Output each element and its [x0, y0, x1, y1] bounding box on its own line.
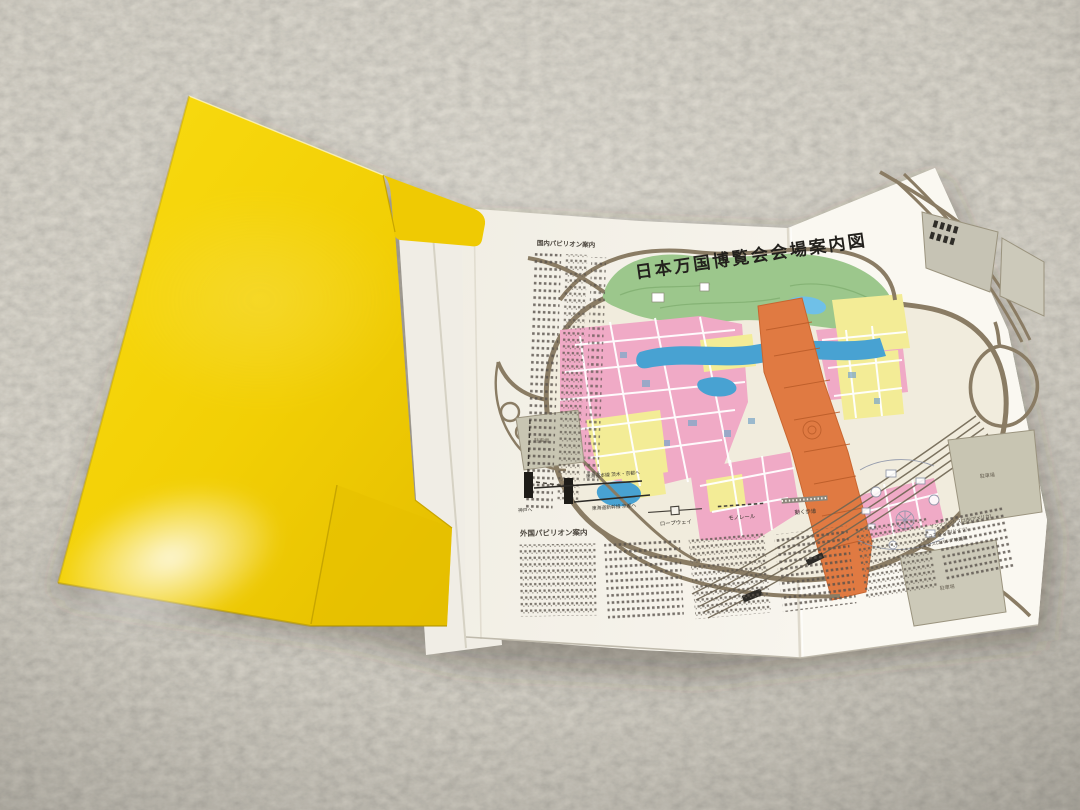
foreign-list-column: [689, 533, 772, 619]
foreign-list-column: [519, 543, 596, 616]
ropeway-symbol-square: [671, 506, 680, 515]
foreign-pavilion-heading: 外国パビリオン案内: [520, 527, 588, 538]
station-bar: [524, 472, 533, 498]
foreign-list-column: [774, 526, 857, 612]
station-bar: [564, 478, 573, 504]
park-pavilion: [652, 293, 664, 302]
scene: 駐車場 駐車場 駐車場 日本万国博覧会会場案内図 国内パビリオン案内: [0, 0, 1080, 810]
park-pavilion: [700, 283, 709, 291]
photo-of-expo70-map-folder: 駐車場 駐車場 駐車場 日本万国博覧会会場案内図 国内パビリオン案内: [0, 0, 1080, 810]
domestic-pavilion-list: 国内パビリオン案内: [525, 238, 606, 513]
foreign-list-column: [855, 517, 937, 599]
foreign-list-column: [604, 538, 684, 620]
folder-sheen: [110, 190, 410, 410]
